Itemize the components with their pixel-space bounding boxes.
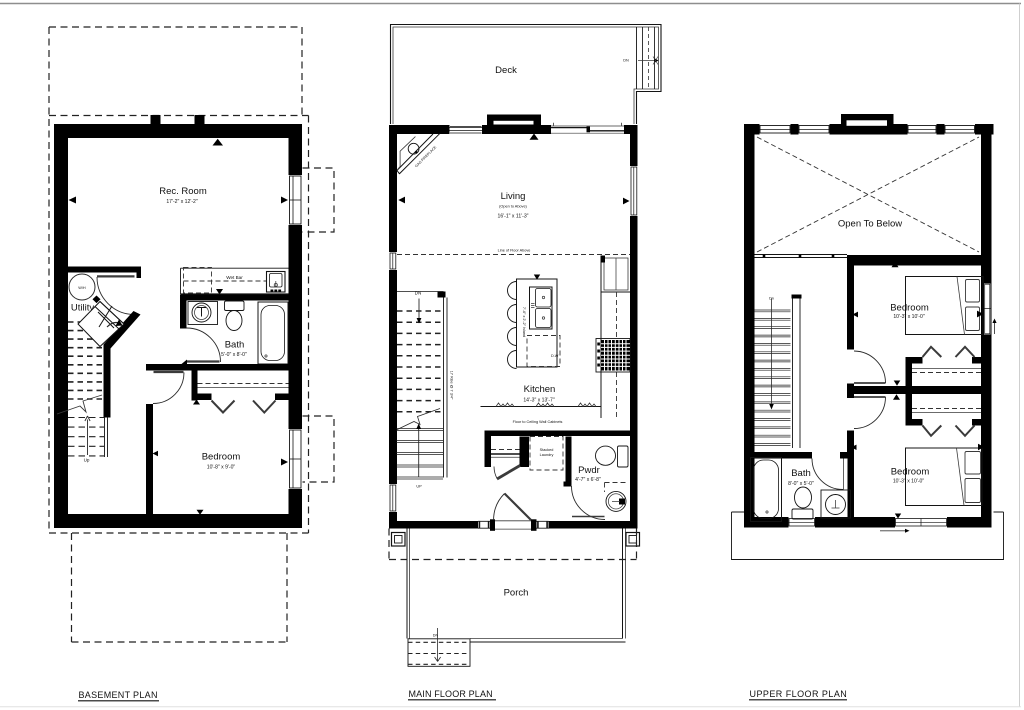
- svg-text:(Open to Above): (Open to Above): [499, 205, 527, 209]
- svg-text:Bedroom: Bedroom: [202, 452, 241, 463]
- svg-text:Stacked: Stacked: [540, 448, 554, 452]
- svg-text:Bedroom: Bedroom: [890, 303, 929, 314]
- svg-text:Dn: Dn: [769, 297, 774, 301]
- svg-text:16'-1" x 11'-3": 16'-1" x 11'-3": [498, 214, 529, 220]
- svg-text:Bath: Bath: [225, 340, 245, 351]
- svg-text:MAIN FLOOR PLAN: MAIN FLOOR PLAN: [409, 689, 493, 699]
- svg-text:Porch: Porch: [504, 588, 529, 599]
- svg-text:4'-7" x 6'-8": 4'-7" x 6'-8": [575, 477, 601, 483]
- svg-text:W/H: W/H: [78, 286, 86, 290]
- svg-text:5'-0" x 8'-0": 5'-0" x 8'-0": [221, 352, 247, 358]
- svg-text:Wet Bar: Wet Bar: [226, 275, 243, 280]
- svg-text:DN: DN: [433, 633, 439, 637]
- svg-text:10'-3" x 10'-0": 10'-3" x 10'-0": [893, 479, 925, 485]
- svg-text:Pwdr: Pwdr: [578, 465, 600, 476]
- svg-text:Laundry: Laundry: [540, 453, 554, 457]
- svg-text:8'-0" x 5'-0": 8'-0" x 5'-0": [788, 481, 814, 487]
- svg-text:Open To Below: Open To Below: [838, 219, 902, 230]
- svg-text:10'-8" x 9'-0": 10'-8" x 9'-0": [207, 465, 236, 471]
- svg-text:Rec. Room: Rec. Room: [159, 186, 207, 197]
- svg-text:Up: Up: [84, 458, 90, 463]
- svg-text:7'-6" x 2'-2" Island: 7'-6" x 2'-2" Island: [522, 307, 526, 337]
- svg-text:BASEMENT PLAN: BASEMENT PLAN: [79, 690, 158, 700]
- svg-text:Bedroom: Bedroom: [891, 467, 930, 478]
- svg-text:Deck: Deck: [495, 65, 517, 76]
- svg-text:D.W: D.W: [551, 354, 559, 358]
- svg-text:Kitchen: Kitchen: [524, 384, 556, 395]
- svg-text:DN: DN: [415, 291, 422, 296]
- svg-text:UP: UP: [416, 485, 422, 489]
- svg-text:UPPER FLOOR PLAN: UPPER FLOOR PLAN: [750, 689, 848, 699]
- svg-text:Floor to Ceiling Wall Cabinets: Floor to Ceiling Wall Cabinets: [513, 420, 563, 424]
- svg-text:Living: Living: [501, 191, 526, 202]
- svg-text:DN: DN: [623, 59, 629, 63]
- svg-text:10'-3" x 10'-0": 10'-3" x 10'-0": [893, 314, 925, 320]
- svg-text:17 Rise @ 7 3/4": 17 Rise @ 7 3/4": [450, 371, 454, 400]
- svg-text:17'-2" x 12'-2": 17'-2" x 12'-2": [166, 199, 198, 205]
- svg-text:Line of Floor Above: Line of Floor Above: [498, 249, 531, 253]
- svg-text:Bath: Bath: [791, 468, 811, 479]
- svg-text:14'-3" x 13'-7": 14'-3" x 13'-7": [523, 398, 555, 404]
